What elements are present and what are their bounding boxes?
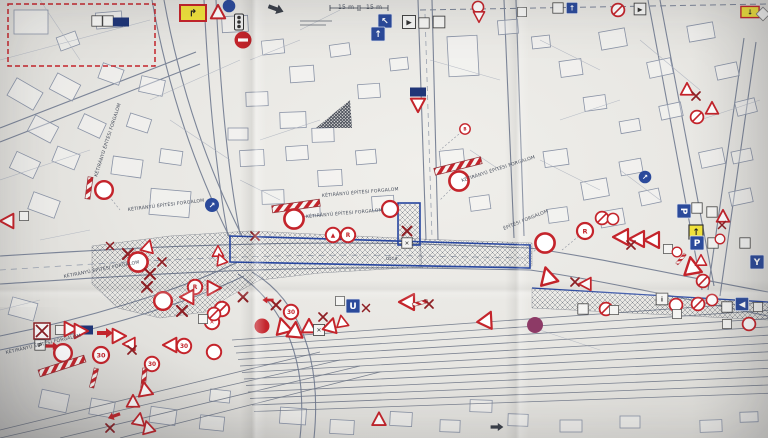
- sign-dotpurple: [527, 317, 543, 333]
- sign-whitesq: [55, 325, 64, 334]
- map-label: 15 m: [338, 4, 354, 11]
- sign-whitesq: [433, 16, 445, 28]
- sign-whitesq: [692, 203, 702, 213]
- sign-dotblue: ↗: [639, 171, 652, 184]
- sign-ring: [672, 247, 682, 257]
- sign-glyph: B: [463, 126, 466, 131]
- sign-xmark: [363, 305, 370, 312]
- sign-dotblue: ↗: [205, 198, 219, 212]
- sign-whitesq: [92, 16, 102, 26]
- sign-whitesq: [517, 7, 526, 16]
- sign-whitesq: [672, 309, 681, 318]
- sign-glyph: 30: [180, 344, 188, 350]
- sign-whitesq: i: [656, 293, 668, 305]
- sign-glyph: U: [349, 302, 356, 312]
- sign-bluerect: [113, 18, 129, 27]
- sign-tri: [335, 314, 349, 327]
- sign-bluesq: ↑: [371, 27, 385, 41]
- sign-tri: [137, 381, 154, 397]
- sign-tri: [477, 308, 498, 328]
- sign-pole: [85, 177, 93, 199]
- sign-glyph: P: [694, 239, 701, 249]
- sign-glyph: R: [346, 233, 351, 239]
- sign-glyph: ↱: [189, 9, 197, 20]
- photographed-traffic-plan: ↱↖↑▶↑▶↓B↗↗▲R✕R✕P30303030✕Ui◀RP↑PY 15 m15…: [0, 0, 768, 438]
- sign-tri: [681, 83, 694, 95]
- sign-dotred: [255, 319, 270, 334]
- sign-tri: [644, 232, 659, 248]
- sign-glyph: ↖: [381, 17, 389, 27]
- sign-ring: [715, 234, 725, 244]
- sign-glyph: R: [582, 227, 587, 235]
- sign-glyph: ↑: [374, 30, 382, 40]
- sign-ring: [607, 213, 618, 224]
- cadastral-parcels: [0, 0, 760, 435]
- sign-ring: ▲: [326, 228, 340, 242]
- sign-bluesq: P: [677, 204, 691, 218]
- sign-xmark: [571, 278, 579, 286]
- sign-xmark: [106, 424, 114, 432]
- sign-whitesq: ▶: [403, 16, 416, 29]
- sign-bluesq: P: [690, 236, 704, 250]
- sign-tri: [613, 229, 628, 245]
- sign-ring: B: [460, 124, 470, 134]
- sign-glyph: ▲: [331, 233, 336, 239]
- sign-signal: [235, 14, 244, 30]
- sign-bluesq: ↖: [378, 14, 392, 28]
- sign-ring: [207, 345, 221, 359]
- sign-bluesq: ◀: [735, 297, 748, 310]
- sign-whitesq: ✕: [402, 238, 412, 248]
- sign-xmark: [425, 300, 433, 308]
- sign-whitesq: [722, 319, 731, 328]
- sign-tri: [132, 412, 147, 426]
- sign-whitesq: [335, 296, 344, 305]
- map-label: utca: [386, 256, 398, 262]
- sign-glyph: ↗: [209, 201, 216, 210]
- sign-yield: [411, 99, 425, 113]
- sign-noentry: [235, 32, 252, 49]
- sign-glyph: 30: [287, 310, 295, 316]
- sign-whitesq: [103, 16, 113, 26]
- sign-yield: [473, 12, 484, 22]
- sign-bluesq: ↑: [566, 2, 577, 13]
- sign-ring: [535, 233, 554, 252]
- sign-bluesq: U: [346, 299, 360, 313]
- sign-whitesq: [753, 302, 762, 311]
- sign-ring: [382, 201, 398, 217]
- sign-whitesq: [722, 302, 732, 312]
- sign-ring: R: [577, 223, 593, 239]
- sign-glyph: ▶: [638, 6, 643, 13]
- sign-glyph: ✕: [317, 327, 322, 334]
- sign-whitesq: [553, 3, 563, 13]
- sign-dotblue: [223, 0, 236, 12]
- sign-whitesq: [740, 238, 750, 248]
- sign-glyph: ◀: [739, 300, 746, 310]
- sign-glyph: 30: [96, 351, 106, 359]
- sign-ring: [154, 292, 172, 310]
- sign-arrowdark: [267, 2, 285, 17]
- sign-bluerect: [410, 88, 426, 97]
- sign-glyph: ↓: [747, 8, 753, 16]
- sign-tri: [695, 255, 706, 266]
- sign-whitesq: [19, 211, 28, 220]
- sign-glyph: P: [678, 208, 688, 215]
- sign-tri: [537, 265, 558, 285]
- sign-ring: [95, 181, 113, 199]
- sign-xmark: [239, 293, 248, 302]
- sign-ring: [54, 344, 72, 362]
- sign-glyph: ↑: [569, 3, 575, 12]
- sign-ringslash: [697, 275, 710, 288]
- sign-ring: [284, 209, 303, 228]
- sign-whitesq: [578, 304, 588, 314]
- sign-xmark: [692, 92, 700, 100]
- sign-ring: [743, 318, 756, 331]
- sign-whitesq: [663, 244, 672, 253]
- sign-ringslash: [692, 298, 705, 311]
- sign-tri: [0, 214, 13, 228]
- sign-glyph: Y: [753, 258, 761, 268]
- sign-pole: [89, 368, 98, 388]
- sign-whitesq: [419, 18, 429, 28]
- sign-ring: 30: [93, 347, 109, 363]
- sign-tri: [706, 102, 719, 114]
- sign-whitesq: [609, 305, 618, 314]
- sign-ring: 30: [177, 339, 191, 353]
- sign-ring: [706, 294, 717, 305]
- sign-tri: [399, 294, 414, 310]
- sign-tri: [163, 338, 177, 352]
- plan-drawing: ↱↖↑▶↑▶↓B↗↗▲R✕R✕P30303030✕Ui◀RP↑PY 15 m15…: [0, 0, 768, 438]
- sign-xmark: [272, 301, 281, 310]
- sign-tri: [372, 412, 386, 425]
- sign-whitesq: [198, 314, 207, 323]
- sign-glyph: ↗: [642, 173, 648, 182]
- sign-whitesq: ▶: [634, 3, 646, 15]
- sign-ring: [472, 1, 483, 12]
- map-label: ÉPÍTÉSI FORGALOM: [502, 207, 549, 232]
- sign-ring: R: [341, 228, 355, 242]
- sign-bluesq: Y: [750, 255, 764, 269]
- sign-boxx: [34, 323, 50, 339]
- sign-glyph: ✕: [405, 241, 410, 247]
- map-label: 15 m: [366, 4, 382, 11]
- sign-ringslash: [612, 4, 625, 17]
- sign-ringslash: [208, 308, 221, 321]
- sign-arrowdark: [491, 423, 504, 431]
- sign-glyph: 30: [148, 362, 156, 368]
- sign-glyph: ▶: [406, 19, 412, 27]
- sign-ringslash: [691, 111, 704, 124]
- sign-tri: [113, 329, 127, 343]
- map-label: KÉTIRÁNYÚ ÉPÍTÉSI FORGALOM: [460, 152, 536, 183]
- sign-ringslash: [596, 212, 609, 225]
- sign-ydetour: ↱: [180, 5, 206, 21]
- sign-whitesq: [707, 207, 717, 217]
- sign-ring: 30: [284, 305, 298, 319]
- sign-glyph: i: [661, 296, 663, 303]
- sign-ydetour: ↓: [741, 6, 759, 17]
- sign-xmark: [319, 313, 327, 321]
- sign-arrow: [97, 328, 113, 338]
